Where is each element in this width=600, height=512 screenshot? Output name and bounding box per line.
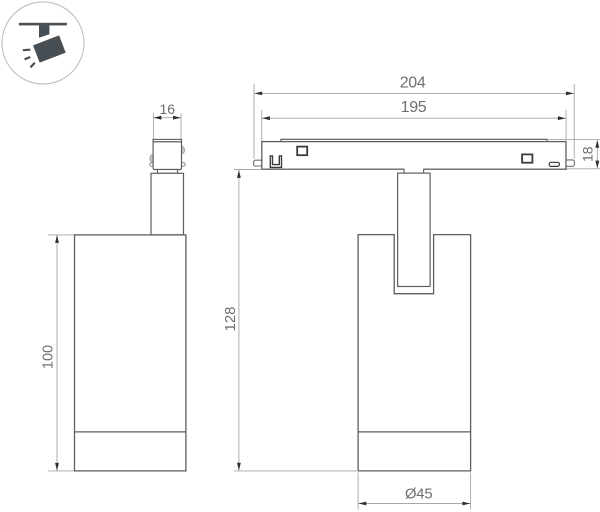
- svg-text:195: 195: [401, 99, 427, 116]
- svg-text:100: 100: [40, 345, 56, 369]
- svg-text:204: 204: [400, 75, 426, 92]
- svg-text:18: 18: [579, 146, 595, 162]
- svg-text:16: 16: [160, 101, 176, 117]
- svg-text:Ø45: Ø45: [405, 487, 432, 503]
- svg-text:128: 128: [222, 306, 239, 331]
